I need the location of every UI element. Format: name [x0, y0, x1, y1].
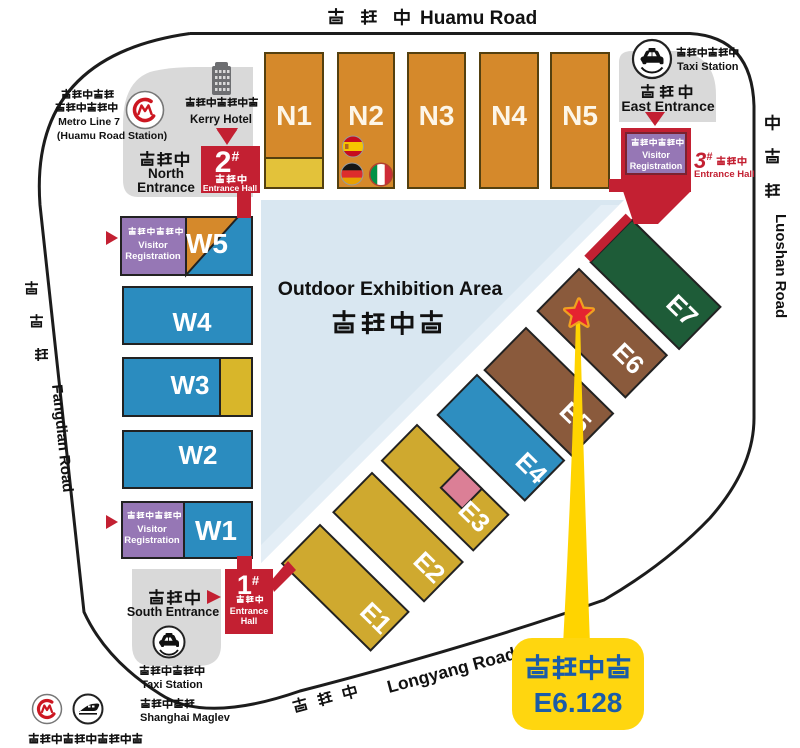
svg-text:Kerry Hotel: Kerry Hotel	[190, 114, 252, 126]
svg-text:Registration: Registration	[125, 251, 181, 262]
svg-text:N4: N4	[491, 100, 527, 131]
svg-text:N5: N5	[562, 100, 598, 131]
svg-text:Registration: Registration	[630, 161, 683, 171]
svg-text:W1: W1	[195, 515, 237, 546]
svg-text:East Entrance: East Entrance	[621, 98, 715, 114]
svg-text:Registration: Registration	[124, 535, 180, 546]
svg-text:N2: N2	[348, 100, 384, 131]
svg-text:N1: N1	[276, 100, 312, 131]
svg-text:W2: W2	[179, 440, 218, 470]
svg-text:Visitor: Visitor	[138, 240, 168, 251]
svg-text:North: North	[148, 166, 184, 181]
svg-text:Luoshan Road: Luoshan Road	[772, 214, 789, 318]
svg-text:W4: W4	[173, 307, 213, 337]
svg-text:Visitor: Visitor	[137, 524, 167, 535]
svg-text:Huamu Road: Huamu Road	[420, 8, 537, 29]
svg-text:Entrance: Entrance	[137, 180, 195, 195]
svg-text:(Huamu Road Station): (Huamu Road Station)	[57, 130, 167, 142]
svg-text:W3: W3	[171, 370, 210, 400]
svg-text:Metro Line 7: Metro Line 7	[58, 116, 120, 128]
svg-text:Entrance Hall: Entrance Hall	[694, 169, 755, 180]
svg-text:W5: W5	[186, 228, 228, 259]
svg-text:Visitor: Visitor	[642, 150, 670, 160]
svg-text:Outdoor Exhibition Area: Outdoor Exhibition Area	[278, 278, 503, 300]
svg-text:Shanghai Maglev: Shanghai Maglev	[140, 712, 231, 724]
svg-text:E6.128: E6.128	[534, 687, 623, 718]
svg-text:N3: N3	[419, 100, 455, 131]
svg-text:Entrance Hall: Entrance Hall	[203, 183, 257, 193]
svg-text:South Entrance: South Entrance	[127, 605, 219, 619]
svg-text:Entrance: Entrance	[230, 606, 269, 616]
svg-text:Taxi Station: Taxi Station	[141, 679, 203, 691]
svg-text:Taxi Station: Taxi Station	[677, 61, 739, 73]
svg-text:Hall: Hall	[241, 616, 258, 626]
